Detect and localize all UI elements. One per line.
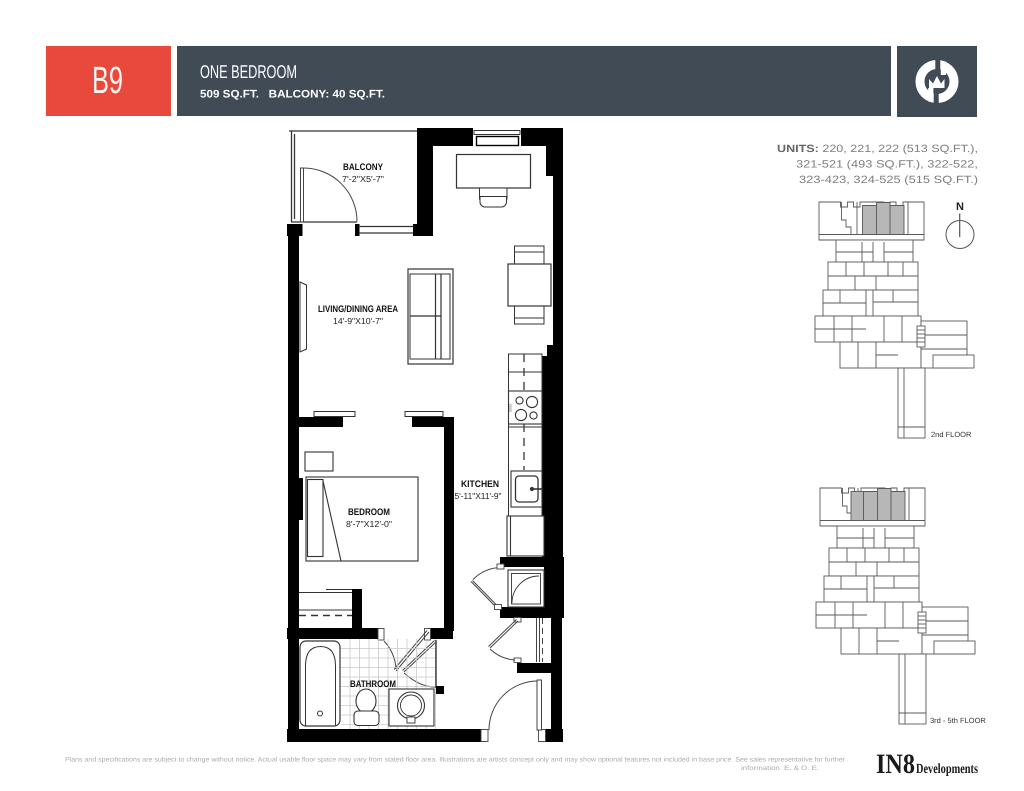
svg-text:321-521 (493 SQ.FT.), 322-522,: 321-521 (493 SQ.FT.), 322-522, [796,159,978,171]
svg-text:2nd FLOOR: 2nd FLOOR [931,430,972,439]
svg-text:3rd - 5th FLOOR: 3rd - 5th FLOOR [930,716,986,725]
svg-text:8'-7"X12'-0": 8'-7"X12'-0" [346,519,392,529]
svg-text:BATHROOM: BATHROOM [350,679,396,690]
svg-text:N: N [956,201,964,213]
svg-text:LIVING/DINING AREA: LIVING/DINING AREA [318,304,398,315]
svg-text:509 SQ.FT. BALCONY: 40 SQ.FT: 509 SQ.FT. BALCONY: 40 SQ.FT. [200,89,385,101]
svg-text:Developments: Developments [916,762,978,777]
svg-text:Plans and specifications are s: Plans and specifications are subject to … [65,757,846,764]
svg-text:7'-2"X5'-7": 7'-2"X5'-7" [342,174,384,184]
svg-text:ONE BEDROOM: ONE BEDROOM [200,61,297,82]
svg-text:UNITS: 220, 221, 222 (513 SQ.F: UNITS: 220, 221, 222 (513 SQ.FT.), [777,143,978,155]
svg-text:BEDROOM: BEDROOM [348,507,390,518]
svg-text:0000: 0000 [509,403,513,412]
svg-text:14'-9"X10'-7": 14'-9"X10'-7" [333,316,383,326]
svg-text:BALCONY: BALCONY [343,162,384,173]
svg-text:information. E. & O. E.: information. E. & O. E. [741,765,819,772]
svg-text:IN8: IN8 [876,749,915,780]
svg-text:KITCHEN: KITCHEN [461,479,499,490]
svg-text:323-423, 324-525 (515 SQ.FT.): 323-423, 324-525 (515 SQ.FT.) [799,174,978,186]
svg-text:B9: B9 [92,60,123,102]
svg-text:5'-11"X11'-9": 5'-11"X11'-9" [455,491,502,501]
